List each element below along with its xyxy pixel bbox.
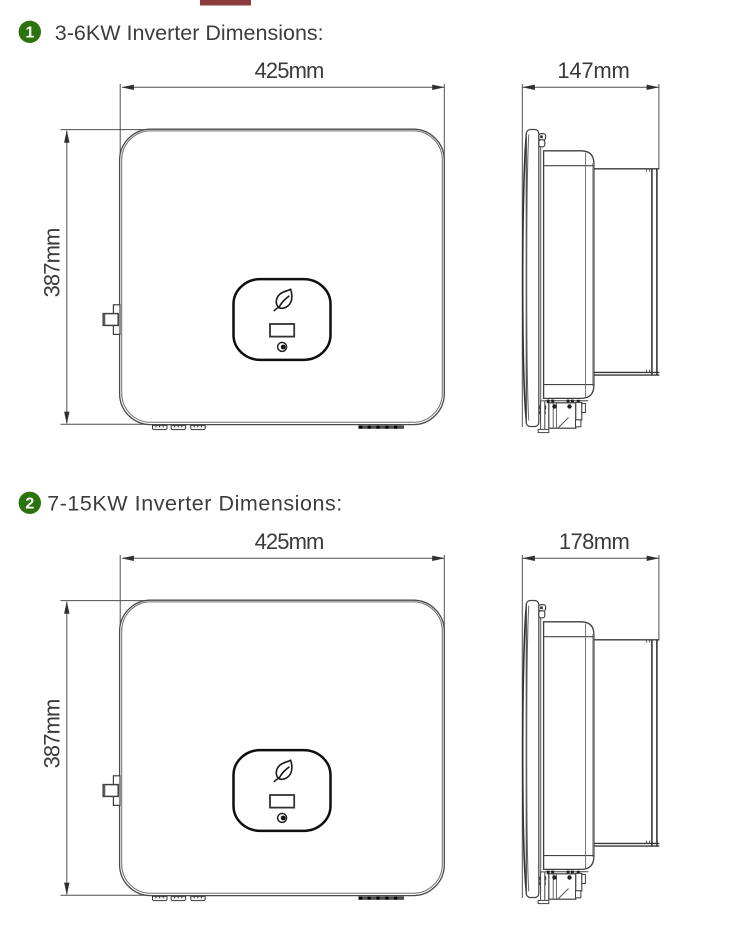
svg-text:3-6KW Inverter Dimensions:: 3-6KW Inverter Dimensions:	[55, 21, 324, 45]
svg-text:1: 1	[25, 25, 34, 42]
svg-text:2: 2	[25, 496, 34, 513]
svg-text:178mm: 178mm	[559, 529, 629, 554]
svg-text:7-15KW Inverter Dimensions:: 7-15KW Inverter Dimensions:	[47, 492, 343, 516]
svg-text:387mm: 387mm	[39, 229, 64, 298]
svg-text:387mm: 387mm	[39, 700, 64, 769]
svg-text:425mm: 425mm	[255, 529, 324, 554]
svg-text:147mm: 147mm	[557, 58, 629, 83]
svg-text:425mm: 425mm	[255, 58, 324, 83]
